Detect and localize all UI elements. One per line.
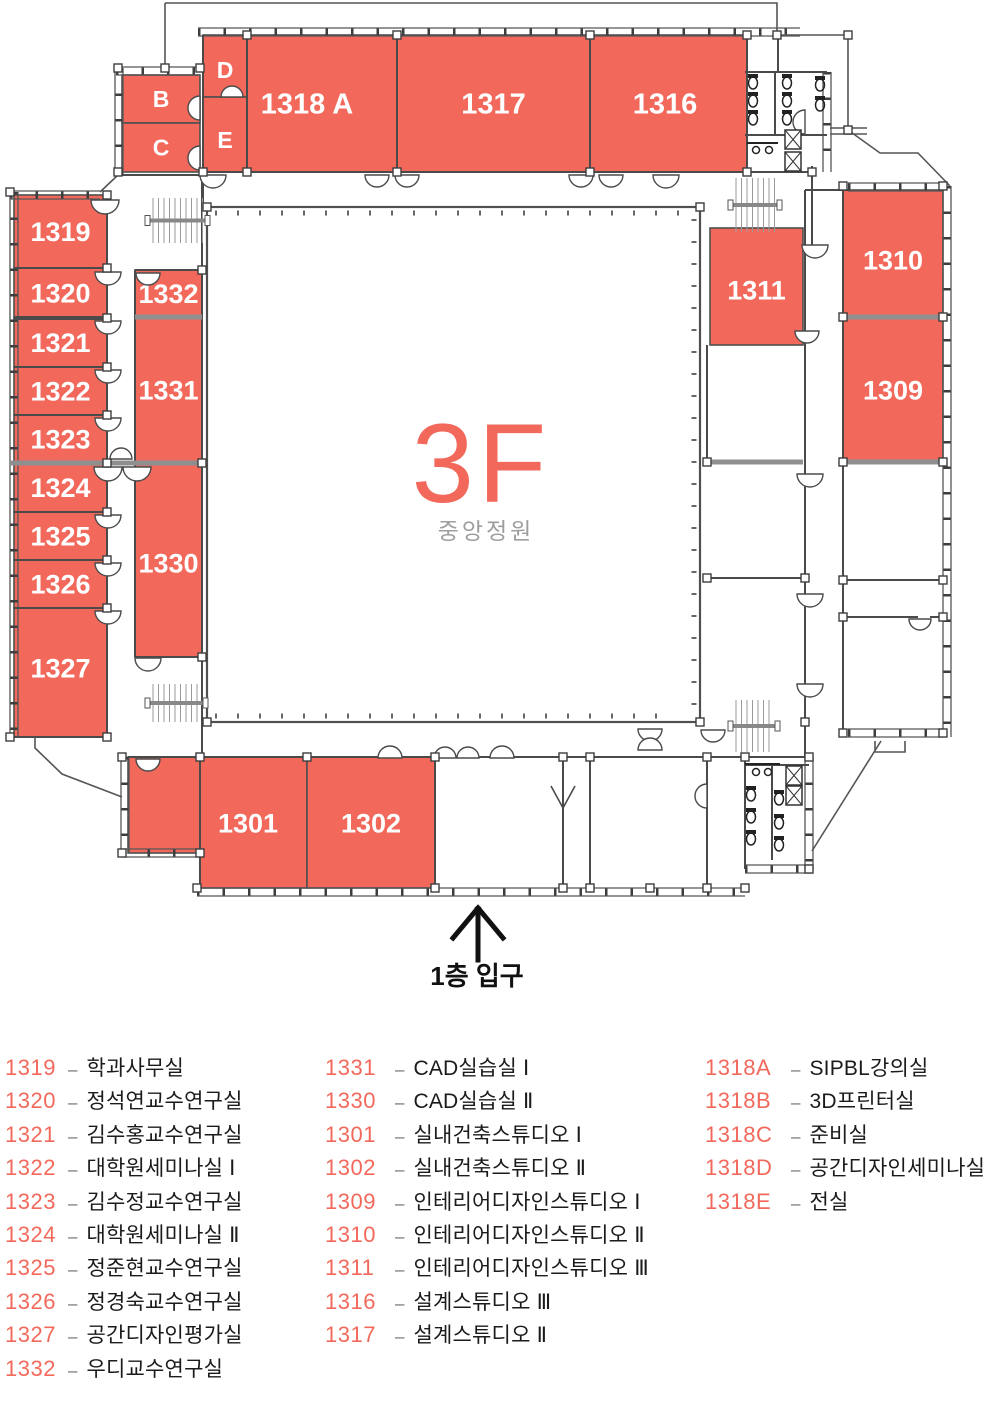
floor-plan-page: BCDE1318 A131713161319132013211322132313…: [0, 0, 997, 1422]
door-arc: [378, 746, 402, 758]
legend-item: 1316–설계스튜디오 Ⅲ: [325, 1286, 649, 1319]
legend-room-number: 1319: [5, 1055, 62, 1081]
wall-joint: [103, 459, 111, 467]
door-arc: [569, 175, 593, 187]
wall-joint: [198, 653, 206, 661]
legend-room-name: 설계스튜디오 Ⅱ: [413, 1319, 547, 1349]
sink-fixture: [765, 769, 772, 776]
floor-title: 3F: [412, 401, 551, 526]
legend-column-2: 1331–CAD실습실 Ⅰ1330–CAD실습실 Ⅱ1301–실내건축스튜디오 …: [325, 1052, 649, 1353]
legend-item: 1318E–전실: [705, 1186, 985, 1219]
room-1316: 1316: [590, 35, 747, 172]
wall-joint: [114, 168, 122, 176]
legend-room-name: 대학원세미나실 Ⅱ: [86, 1219, 239, 1249]
legend-room-name: 전실: [809, 1186, 848, 1216]
room-label-1324: 1324: [30, 473, 90, 503]
legend-dash: –: [791, 1093, 800, 1113]
wall-joint: [801, 574, 809, 582]
legend-room-name: 김수정교수연구실: [86, 1186, 242, 1216]
legend-room-number: 1318B: [705, 1088, 785, 1114]
door-arc: [110, 448, 132, 459]
legend-room-name: SIPBL강의실: [809, 1052, 928, 1082]
legend-item: 1311–인테리어디자인스튜디오 Ⅲ: [325, 1252, 649, 1285]
room-label-1326: 1326: [30, 569, 90, 599]
room-C: C: [122, 123, 200, 172]
wall-joint: [586, 31, 594, 39]
wall-joint: [703, 574, 711, 582]
legend-room-number: 1320: [5, 1088, 62, 1114]
wall-joint: [696, 203, 704, 211]
wall-joint: [703, 884, 711, 892]
legend-item: 1301–실내건축스튜디오 Ⅰ: [325, 1119, 649, 1152]
wall-joint: [696, 718, 704, 726]
toilet-fixture: [774, 790, 784, 805]
wall-joint: [939, 313, 947, 321]
room-label-1309: 1309: [863, 375, 923, 405]
legend-item: 1330–CAD실습실 Ⅱ: [325, 1085, 649, 1118]
legend-room-number: 1324: [5, 1222, 62, 1248]
door-arc: [599, 175, 623, 187]
legend-dash: –: [395, 1127, 404, 1147]
wall-joint: [243, 31, 251, 39]
room-label-1330: 1330: [138, 548, 198, 578]
legend-dash: –: [68, 1294, 77, 1314]
legend-room-number: 1322: [5, 1155, 62, 1181]
wall-joint: [161, 64, 169, 72]
wall-joint: [196, 64, 204, 72]
legend-room-number: 1330: [325, 1088, 389, 1114]
room-E: E: [203, 97, 247, 172]
room-label-E: E: [217, 127, 232, 153]
room-label-1323: 1323: [30, 424, 90, 454]
legend-item: 1319–학과사무실: [5, 1052, 243, 1085]
legend-dash: –: [395, 1093, 404, 1113]
wall-joint: [743, 168, 751, 176]
wall-joint: [773, 31, 781, 39]
legend-item: 1327–공간디자인평가실: [5, 1319, 243, 1352]
legend-room-number: 1311: [325, 1255, 389, 1281]
room-label-B: B: [153, 86, 170, 112]
staircase: [145, 684, 208, 722]
sink-fixture: [753, 147, 760, 154]
door-arc: [797, 474, 823, 487]
legend-dash: –: [68, 1127, 77, 1147]
legend-room-name: 설계스튜디오 Ⅲ: [413, 1286, 551, 1316]
wall-joint: [196, 753, 204, 761]
legend-item: 1318D–공간디자인세미나실: [705, 1152, 985, 1185]
legend-room-name: 3D프린터실: [809, 1085, 914, 1115]
legend-dash: –: [68, 1260, 77, 1280]
room-1321: 1321: [14, 318, 107, 367]
legend-room-name: 학과사무실: [86, 1052, 184, 1082]
wall-joint: [586, 168, 594, 176]
room-label-1331: 1331: [138, 375, 198, 405]
toilet-fixture: [782, 92, 792, 107]
legend-dash: –: [68, 1194, 77, 1214]
door-arc: [490, 746, 514, 758]
legend-dash: –: [791, 1060, 800, 1080]
door-arc: [638, 738, 662, 750]
room-B: B: [122, 75, 200, 123]
room-annex: [128, 757, 200, 853]
wall-joint: [559, 884, 567, 892]
wall-joint: [839, 576, 847, 584]
room-1325: 1325: [14, 512, 107, 560]
legend-room-name: 인테리어디자인스튜디오 Ⅱ: [413, 1219, 644, 1249]
toilet-fixture: [746, 808, 756, 823]
room-1310: 1310: [843, 190, 943, 317]
legend-item: 1320–정석연교수연구실: [5, 1085, 243, 1118]
wall-joint: [939, 729, 947, 737]
legend-room-name: 인테리어디자인스튜디오 Ⅰ: [413, 1186, 640, 1216]
legend-dash: –: [791, 1127, 800, 1147]
legend-dash: –: [395, 1227, 404, 1247]
toilet-fixture: [748, 74, 758, 89]
entrance-label: 1층 입구: [430, 961, 523, 991]
room-label-1302: 1302: [341, 808, 401, 838]
wall-joint: [844, 31, 852, 39]
room-1330: 1330: [135, 463, 202, 657]
wall-joint: [839, 458, 847, 466]
room-label-1317: 1317: [461, 89, 526, 121]
room-label-1316: 1316: [633, 89, 698, 121]
wall-joint: [193, 884, 201, 892]
shaft-box: [786, 766, 802, 785]
legend-room-number: 1317: [325, 1322, 389, 1348]
legend-item: 1302–실내건축스튜디오 Ⅱ: [325, 1152, 649, 1185]
room-1326: 1326: [14, 560, 107, 608]
wall-joint: [741, 884, 749, 892]
wall-joint: [103, 411, 111, 419]
legend-room-name: 공간디자인평가실: [86, 1319, 242, 1349]
room-label-1310: 1310: [863, 245, 923, 275]
room-1311: 1311: [710, 228, 803, 345]
wall-joint: [839, 182, 847, 190]
wall-joint: [114, 64, 122, 72]
wall-joint: [741, 753, 749, 761]
wall-joint: [844, 126, 852, 134]
wall-joint: [801, 718, 809, 726]
legend-dash: –: [395, 1327, 404, 1347]
legend-room-number: 1318D: [705, 1155, 785, 1181]
legend-room-name: CAD실습실 Ⅰ: [413, 1052, 529, 1082]
wall-joint: [103, 604, 111, 612]
room-1317: 1317: [397, 35, 590, 172]
door-arc: [701, 730, 725, 742]
wall-joint: [103, 363, 111, 371]
legend-room-number: 1331: [325, 1055, 389, 1081]
staircase: [728, 700, 780, 752]
door-arc: [695, 784, 707, 808]
legend-dash: –: [395, 1194, 404, 1214]
legend-item: 1332–우디교수연구실: [5, 1353, 243, 1386]
room-1301: 1301: [200, 757, 307, 888]
toilet-fixture: [774, 814, 784, 829]
room-label-D: D: [217, 57, 234, 83]
door-arc: [909, 619, 931, 630]
room-1324: 1324: [14, 463, 107, 512]
wall-joint: [939, 613, 947, 621]
wall-joint: [103, 264, 111, 272]
room-label-C: C: [153, 135, 170, 161]
legend-room-name: 김수홍교수연구실: [86, 1119, 242, 1149]
toilet-fixture: [782, 110, 792, 125]
door-arc: [395, 175, 419, 187]
room-1331: 1331: [135, 317, 202, 463]
wall-joint: [198, 266, 206, 274]
legend-room-number: 1318C: [705, 1122, 785, 1148]
room-1327: 1327: [14, 608, 107, 737]
legend-room-name: 정경숙교수연구실: [86, 1286, 242, 1316]
room-1323: 1323: [14, 415, 107, 463]
legend-dash: –: [68, 1093, 77, 1113]
legend-dash: –: [395, 1160, 404, 1180]
legend-room-name: 우디교수연구실: [86, 1353, 223, 1383]
legend-room-name: 인테리어디자인스튜디오 Ⅲ: [413, 1252, 648, 1282]
toilet-fixture: [746, 830, 756, 845]
wall-joint: [839, 613, 847, 621]
room-1302: 1302: [307, 757, 435, 888]
shaft-box: [785, 152, 801, 171]
legend-item: 1317–설계스튜디오 Ⅱ: [325, 1319, 649, 1352]
legend-room-name: 정석연교수연구실: [86, 1085, 242, 1115]
shaft-box: [786, 786, 802, 805]
legend-dash: –: [68, 1327, 77, 1347]
legend-item: 1331–CAD실습실 Ⅰ: [325, 1052, 649, 1085]
wall-joint: [586, 884, 594, 892]
wall-joint: [805, 865, 813, 873]
legend-item: 1325–정준현교수연구실: [5, 1252, 243, 1285]
wall-joint: [559, 753, 567, 761]
wall-joint: [103, 314, 111, 322]
legend-dash: –: [791, 1194, 800, 1214]
legend-room-number: 1327: [5, 1322, 62, 1348]
wall-joint: [6, 733, 14, 741]
toilet-fixture: [774, 836, 784, 851]
wall-joint: [431, 884, 439, 892]
legend-item: 1324–대학원세미나실 Ⅱ: [5, 1219, 243, 1252]
legend-room-name: 준비실: [809, 1119, 868, 1149]
wall-joint: [393, 168, 401, 176]
wall-joint: [199, 168, 207, 176]
wall-joint: [196, 849, 204, 857]
legend-dash: –: [791, 1160, 800, 1180]
legend-item: 1326–정경숙교수연구실: [5, 1286, 243, 1319]
door-arc: [797, 594, 823, 607]
entrance-arrow: [453, 908, 503, 960]
room-1318A: 1318 A: [247, 35, 397, 172]
sink-fixture: [753, 769, 760, 776]
legend-room-name: CAD실습실 Ⅱ: [413, 1085, 533, 1115]
legend-item: 1318A–SIPBL강의실: [705, 1052, 985, 1085]
legend-column-1: 1319–학과사무실1320–정석연교수연구실1321–김수홍교수연구실1322…: [5, 1052, 243, 1386]
legend-room-name: 공간디자인세미나실: [809, 1152, 985, 1182]
door-arc: [457, 747, 479, 758]
wall-joint: [939, 576, 947, 584]
wall-joint: [703, 458, 711, 466]
wall-joint: [839, 729, 847, 737]
room-label-1325: 1325: [30, 521, 90, 551]
wall-joint: [939, 182, 947, 190]
sink-fixture: [766, 147, 773, 154]
legend-room-number: 1321: [5, 1122, 62, 1148]
legend-room-number: 1323: [5, 1189, 62, 1215]
legend-dash: –: [68, 1060, 77, 1080]
room-1320: 1320: [14, 268, 107, 318]
wall-joint: [103, 556, 111, 564]
legend-item: 1318B–3D프린터실: [705, 1085, 985, 1118]
wall-joint: [303, 753, 311, 761]
legend-dash: –: [395, 1060, 404, 1080]
legend-room-number: 1310: [325, 1222, 389, 1248]
door-arc: [135, 658, 161, 671]
wall-joint: [103, 733, 111, 741]
wall-joint: [431, 753, 439, 761]
wall-joint: [118, 849, 126, 857]
staircase: [145, 198, 210, 243]
room-label-1311: 1311: [727, 275, 786, 305]
wall-joint: [103, 191, 111, 199]
wall-joint: [393, 31, 401, 39]
staircase: [728, 178, 782, 232]
legend-room-number: 1318E: [705, 1189, 785, 1215]
wall-joint: [198, 459, 206, 467]
wall-joint: [839, 313, 847, 321]
legend-room-name: 대학원세미나실 Ⅰ: [86, 1152, 235, 1182]
wall-joint: [243, 168, 251, 176]
legend-dash: –: [68, 1227, 77, 1247]
room-1309: 1309: [843, 317, 943, 462]
room-label-1327: 1327: [30, 653, 90, 683]
floor-plan-drawing: BCDE1318 A131713161319132013211322132313…: [0, 0, 997, 1010]
room-label-1322: 1322: [30, 376, 90, 406]
room-label-1318A: 1318 A: [261, 89, 353, 121]
legend-room-name: 실내건축스튜디오 Ⅱ: [413, 1152, 586, 1182]
toilet-fixture: [746, 786, 756, 801]
legend-dash: –: [68, 1160, 77, 1180]
legend-item: 1310–인테리어디자인스튜디오 Ⅱ: [325, 1219, 649, 1252]
legend-room-number: 1326: [5, 1289, 62, 1315]
legend-room-number: 1309: [325, 1189, 389, 1215]
door-arc: [653, 175, 679, 188]
legend-room-number: 1301: [325, 1122, 389, 1148]
wall-joint: [703, 753, 711, 761]
legend-item: 1323–김수정교수연구실: [5, 1186, 243, 1219]
legend-item: 1321–김수홍교수연구실: [5, 1119, 243, 1152]
wall-joint: [203, 203, 211, 211]
legend-item: 1318C–준비실: [705, 1119, 985, 1152]
legend-dash: –: [68, 1361, 77, 1381]
wall-joint: [743, 31, 751, 39]
wall-joint: [6, 188, 14, 196]
door-arc: [797, 684, 823, 697]
legend-room-name: 정준현교수연구실: [86, 1252, 242, 1282]
wall-joint: [203, 718, 211, 726]
legend-item: 1322–대학원세미나실 Ⅰ: [5, 1152, 243, 1185]
toilet-fixture: [748, 92, 758, 107]
legend-room-number: 1316: [325, 1289, 389, 1315]
toilet-fixture: [748, 110, 758, 125]
courtyard-label: 중앙정원: [438, 518, 535, 544]
room-label-1321: 1321: [30, 328, 90, 358]
legend-room-number: 1332: [5, 1356, 62, 1382]
wall-joint: [939, 458, 947, 466]
legend-dash: –: [395, 1260, 404, 1280]
room-label-1320: 1320: [30, 278, 90, 308]
wall-joint: [808, 168, 816, 176]
room-label-1301: 1301: [218, 808, 278, 838]
legend-item: 1309–인테리어디자인스튜디오 Ⅰ: [325, 1186, 649, 1219]
legend-room-number: 1325: [5, 1255, 62, 1281]
legend-column-3: 1318A–SIPBL강의실1318B–3D프린터실1318C–준비실1318D…: [705, 1052, 985, 1219]
wall-joint: [646, 884, 654, 892]
wall-joint: [118, 753, 126, 761]
legend-dash: –: [395, 1294, 404, 1314]
shaft-box: [785, 130, 801, 149]
legend-room-name: 실내건축스튜디오 Ⅰ: [413, 1119, 582, 1149]
wall-joint: [805, 753, 813, 761]
wall-joint: [586, 753, 594, 761]
room-1322: 1322: [14, 367, 107, 415]
toilet-fixture: [782, 74, 792, 89]
legend-room-number: 1302: [325, 1155, 389, 1181]
room-label-1319: 1319: [30, 217, 90, 247]
door-arc: [365, 175, 389, 187]
wall-joint: [103, 508, 111, 516]
legend-room-number: 1318A: [705, 1055, 785, 1081]
